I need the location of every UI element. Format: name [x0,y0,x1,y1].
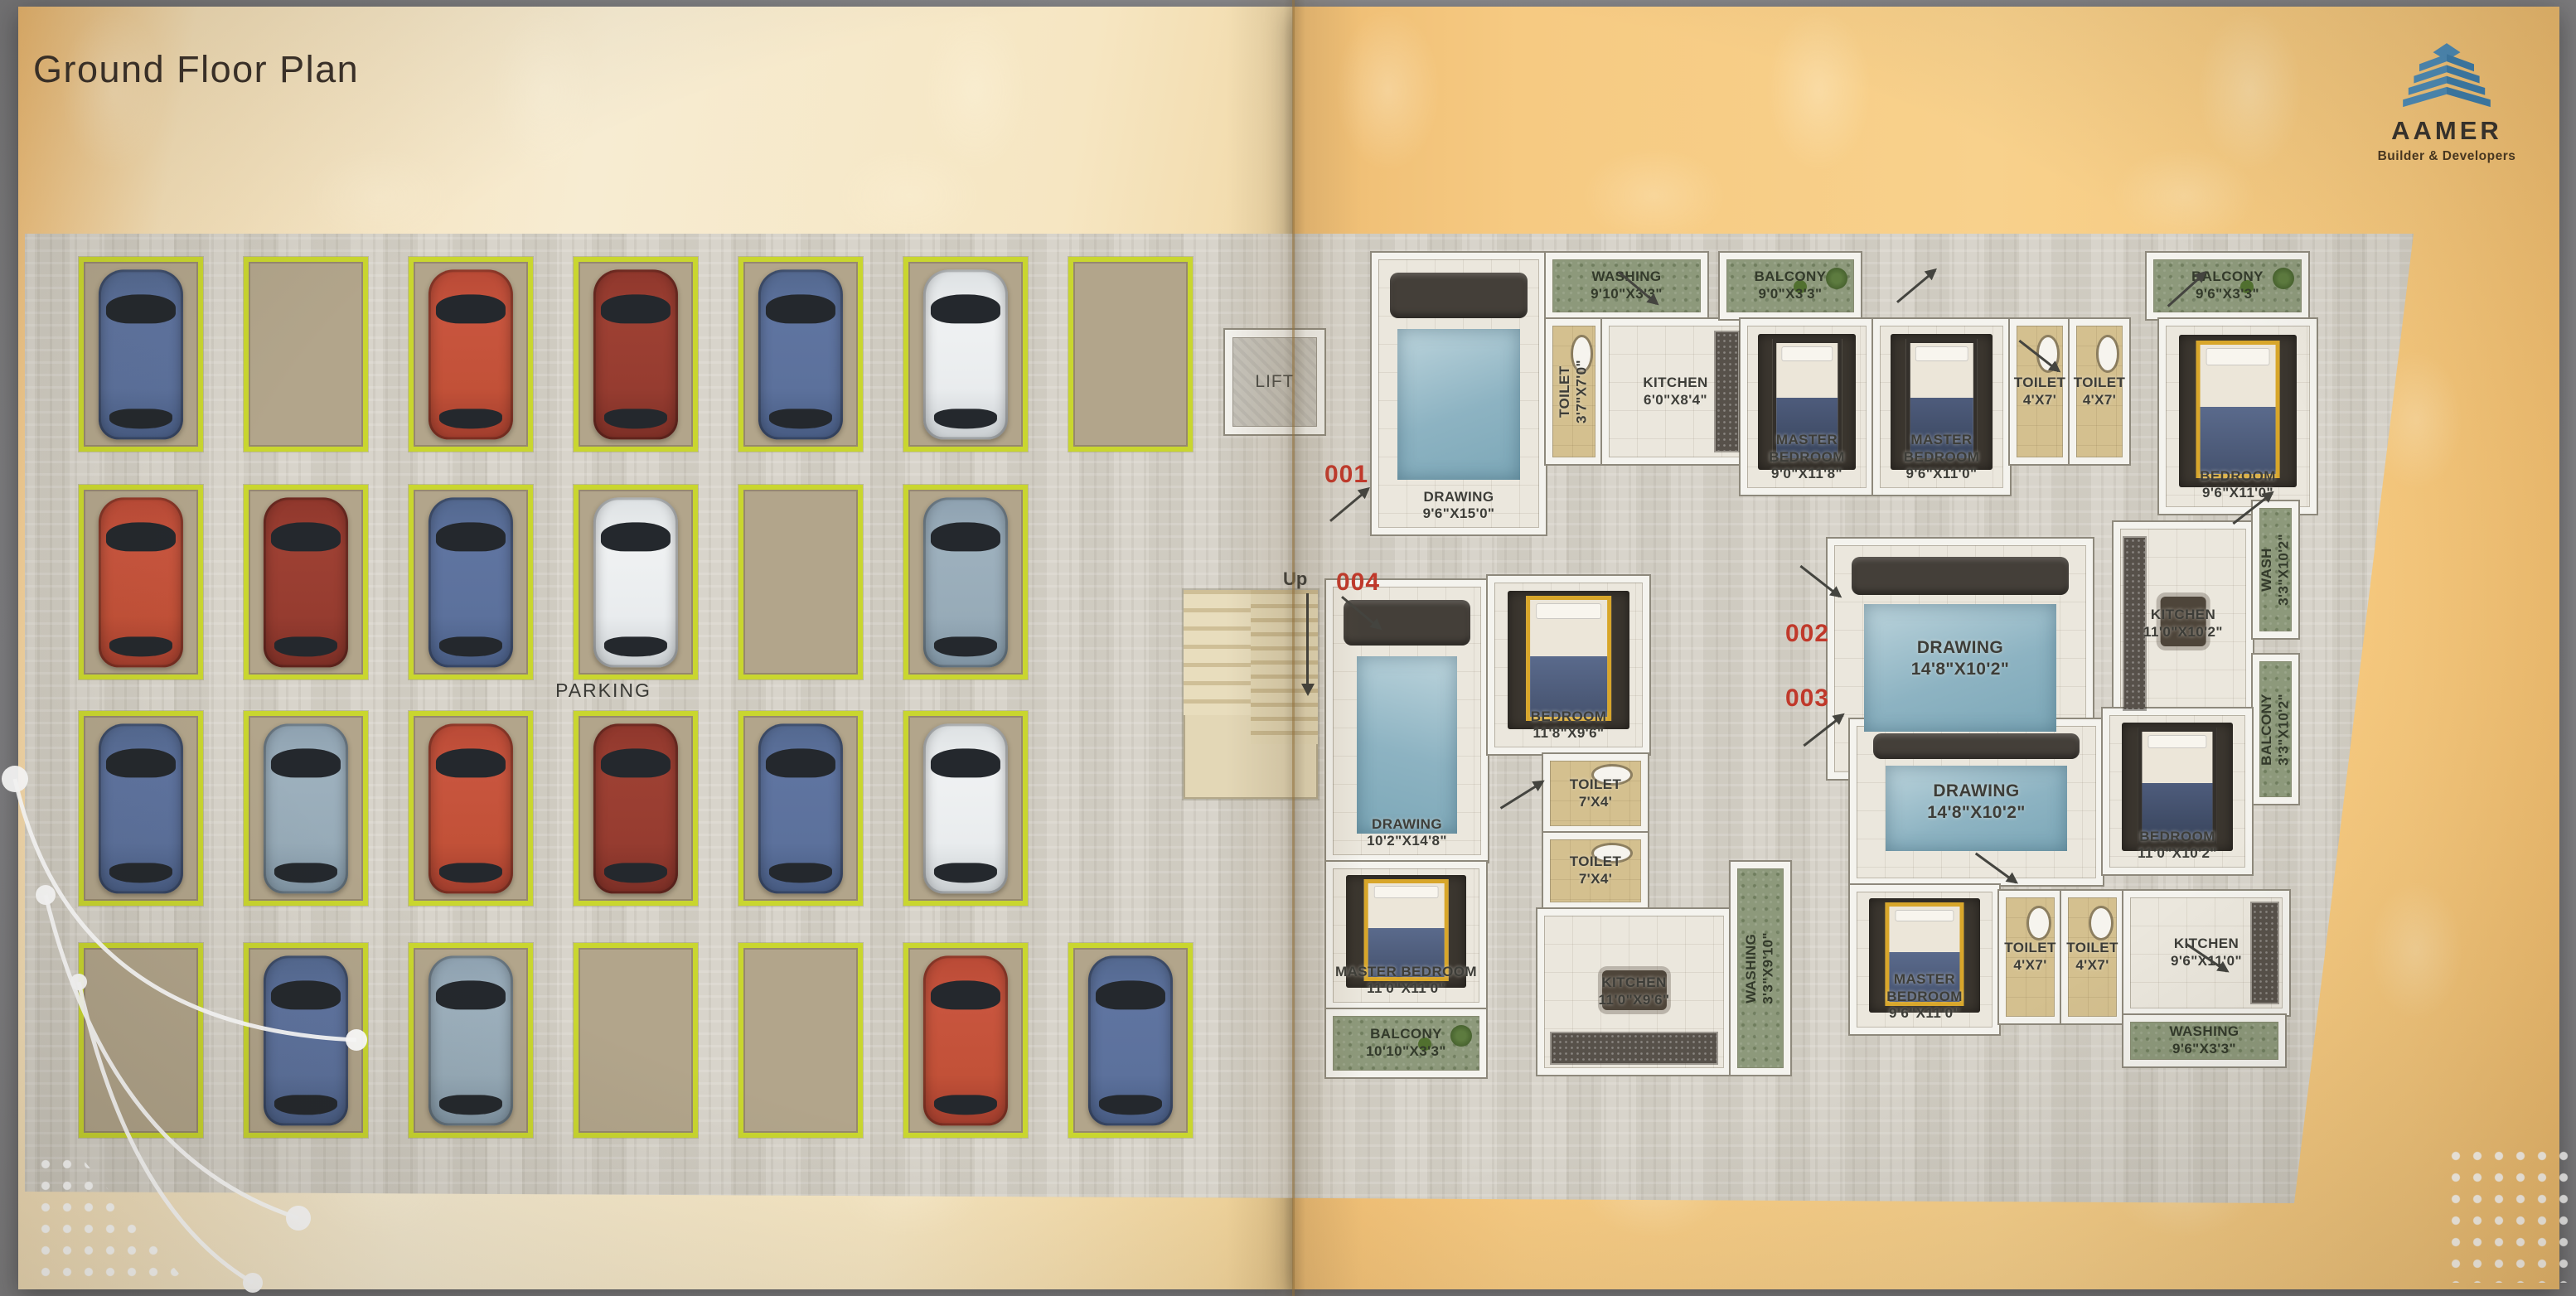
brochure-photo: Ground Floor Plan AAMER Builder & Develo… [0,0,2576,1296]
door-arrow [1500,781,1543,809]
door-arrow [1799,565,1840,597]
unit-number-003: 003 [1785,684,1829,713]
plan-overlay: 001004002003 [0,0,2576,1296]
door-arrow [2167,272,2206,307]
door-arrow [1341,596,1381,630]
door-arrow [1329,488,1369,522]
unit-number-004: 004 [1336,568,1380,597]
door-arrow [2018,340,2059,372]
unit-number-002: 002 [1785,620,1829,648]
door-arrow [2232,492,2273,525]
door-arrow [2185,942,2227,972]
door-arrow [1618,271,1658,305]
door-arrow [1975,853,2017,884]
door-arrow [1896,269,1936,303]
dot-pattern-right [2445,1145,2569,1283]
unit-number-001: 001 [1324,461,1368,489]
door-arrow [1803,714,1843,747]
